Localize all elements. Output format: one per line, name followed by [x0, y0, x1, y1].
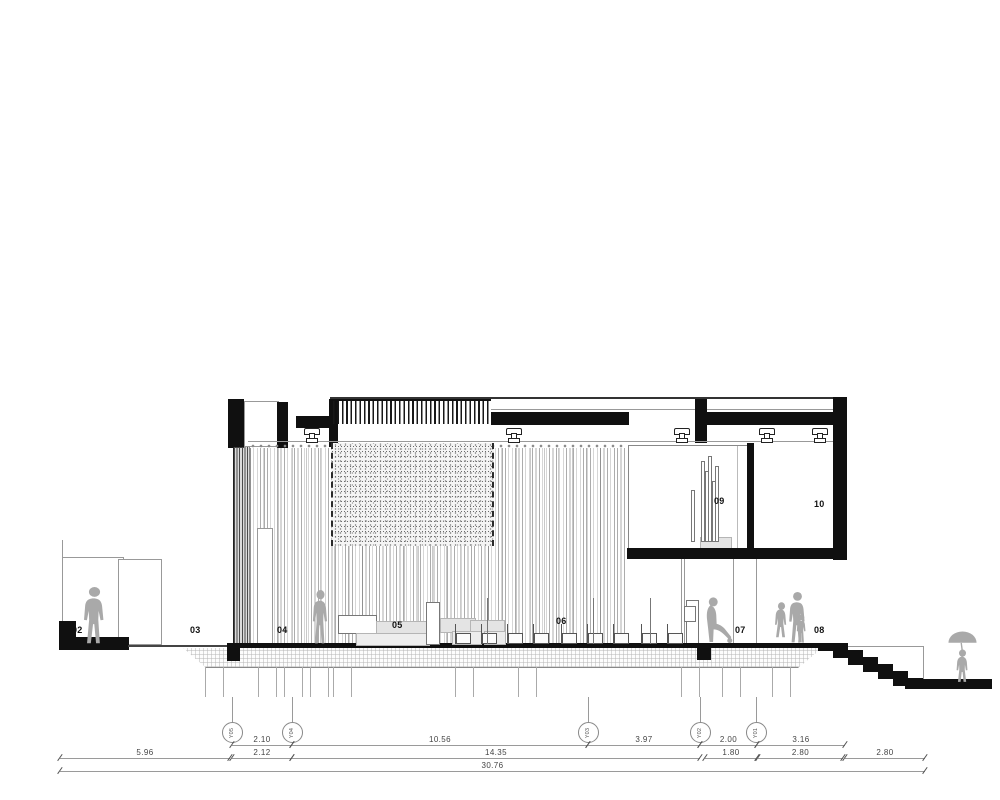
- grid-bubble-label: Y03: [585, 727, 591, 737]
- chair: [561, 624, 577, 644]
- person-figure-02: [80, 587, 109, 644]
- foundation-pile: [772, 667, 791, 697]
- stair-side-line: [923, 646, 924, 680]
- foundation-pile: [258, 667, 277, 697]
- lamp-part: [306, 438, 318, 443]
- chair: [481, 624, 497, 644]
- grid-bubble-label: Y01: [753, 727, 759, 737]
- foundation-pile: [310, 667, 329, 697]
- dimension-line: [845, 758, 925, 759]
- room-label-04: 04: [277, 625, 288, 635]
- mezzanine-slab: [627, 548, 846, 559]
- grid-leader-line: [588, 697, 589, 722]
- dimension-value: 14.35: [485, 748, 507, 757]
- foundation-pile: [284, 667, 303, 697]
- wall-right: [833, 397, 847, 560]
- grid-bubble: Y04: [282, 722, 303, 743]
- roof-inner-line: [491, 409, 836, 410]
- chair: [641, 624, 657, 644]
- dimension-value: 2.00: [720, 735, 737, 744]
- dimension-value: 1.80: [722, 748, 739, 757]
- lamp-fixture: [302, 428, 322, 444]
- person-figure-07: [705, 597, 738, 644]
- porch-column: [756, 559, 757, 644]
- dimension-value: 2.80: [876, 748, 893, 757]
- dimension-value: 3.16: [792, 735, 809, 744]
- umbrella-person-figure: [946, 630, 979, 683]
- wall-box: [684, 606, 696, 622]
- stand-pole: [487, 598, 488, 644]
- textured-panel: [331, 443, 494, 546]
- lamp-part: [761, 438, 773, 443]
- dimension-value: 2.12: [253, 748, 270, 757]
- chair: [533, 624, 549, 644]
- section-drawing: 02 03 04 05 06 07 08 09 10 Y05Y04Y03Y02Y…: [0, 0, 1000, 800]
- ceiling-line: [248, 441, 833, 442]
- dimension-tick: [922, 767, 928, 774]
- dimension-value: 10.56: [429, 735, 451, 744]
- room-label-10: 10: [814, 499, 825, 509]
- room-label-02: 02: [72, 625, 83, 635]
- glazing-line-2: [684, 559, 685, 644]
- room-label-05: 05: [392, 620, 403, 630]
- foundation-pile: [455, 667, 474, 697]
- skylight-louvers: [333, 399, 491, 424]
- lamp-fixture: [810, 428, 830, 444]
- lamp-fixture: [504, 428, 524, 444]
- grid-leader-line: [232, 697, 233, 722]
- wall-divider: [747, 443, 754, 556]
- roof-slab-right: [707, 412, 835, 425]
- chair: [507, 624, 523, 644]
- footing-left: [227, 643, 240, 661]
- person-figure-04: [310, 590, 331, 644]
- lamp-part: [508, 438, 520, 443]
- chair: [667, 624, 683, 644]
- foundation-pile: [681, 667, 700, 697]
- ground-line-left: [128, 645, 231, 647]
- shed-post: [62, 540, 63, 558]
- dimension-line: [292, 745, 588, 746]
- foundation-pile: [722, 667, 741, 697]
- counter-base: [356, 633, 430, 646]
- stand-pole: [593, 598, 594, 644]
- room-09: [628, 445, 750, 551]
- room-label-07: 07: [735, 625, 746, 635]
- dimension-line: [232, 745, 292, 746]
- room-09-partition: [737, 446, 738, 548]
- dimension-value: 5.96: [136, 748, 153, 757]
- dimension-line: [232, 758, 292, 759]
- room-label-09: 09: [714, 496, 725, 506]
- lamp-part: [676, 438, 688, 443]
- foundation-pile: [333, 667, 352, 697]
- dimension-value: 2.10: [253, 735, 270, 744]
- grid-bubble: Y03: [578, 722, 599, 743]
- stair-top-line: [845, 646, 923, 647]
- grid-leader-line: [756, 697, 757, 722]
- chair: [455, 624, 471, 644]
- chair: [587, 624, 603, 644]
- dimension-tick: [922, 754, 928, 761]
- grid-bubble-label: Y04: [289, 727, 295, 737]
- grid-leader-line: [292, 697, 293, 722]
- dimension-value: 2.80: [792, 748, 809, 757]
- foundation-pile: [518, 667, 537, 697]
- grid-leader-line: [700, 697, 701, 722]
- shed-right: [118, 559, 162, 645]
- child-figure-08: [795, 615, 808, 643]
- dimension-line: [60, 758, 230, 759]
- foundation-pile: [205, 667, 224, 697]
- dimension-line: [705, 758, 757, 759]
- organ-pipe: [691, 490, 695, 542]
- stand-pole: [650, 598, 651, 644]
- room-label-03: 03: [190, 625, 201, 635]
- roof-beam-center: [695, 399, 707, 443]
- lamp-part: [814, 438, 826, 443]
- lamp-fixture: [757, 428, 777, 444]
- parapet-block-left: [228, 399, 244, 448]
- room-label-06: 06: [556, 616, 567, 626]
- dimension-line: [60, 771, 925, 772]
- dimension-line: [700, 745, 757, 746]
- dimension-line: [292, 758, 700, 759]
- lamp-fixture: [672, 428, 692, 444]
- dimension-line: [588, 745, 700, 746]
- dimension-line: [758, 758, 843, 759]
- pilaster: [257, 528, 273, 644]
- wall-left-face: [233, 447, 250, 644]
- grid-bubble: Y05: [222, 722, 243, 743]
- floor-hatch: [183, 648, 822, 668]
- footing-center: [697, 643, 711, 660]
- room-label-08: 08: [814, 625, 825, 635]
- parapet-beam: [296, 416, 333, 428]
- grid-bubble-label: Y02: [697, 727, 703, 737]
- dimension-tick: [842, 741, 848, 748]
- service-pillar: [426, 602, 440, 645]
- dimension-value: 3.97: [635, 735, 652, 744]
- grid-bubble: Y02: [690, 722, 711, 743]
- roof-slab-left: [491, 412, 629, 425]
- dimension-line: [757, 745, 845, 746]
- dimension-value: 30.76: [481, 761, 503, 770]
- grid-bubble-label: Y05: [229, 727, 235, 737]
- counter-box: [338, 615, 377, 634]
- grid-bubble: Y01: [746, 722, 767, 743]
- chair: [613, 624, 629, 644]
